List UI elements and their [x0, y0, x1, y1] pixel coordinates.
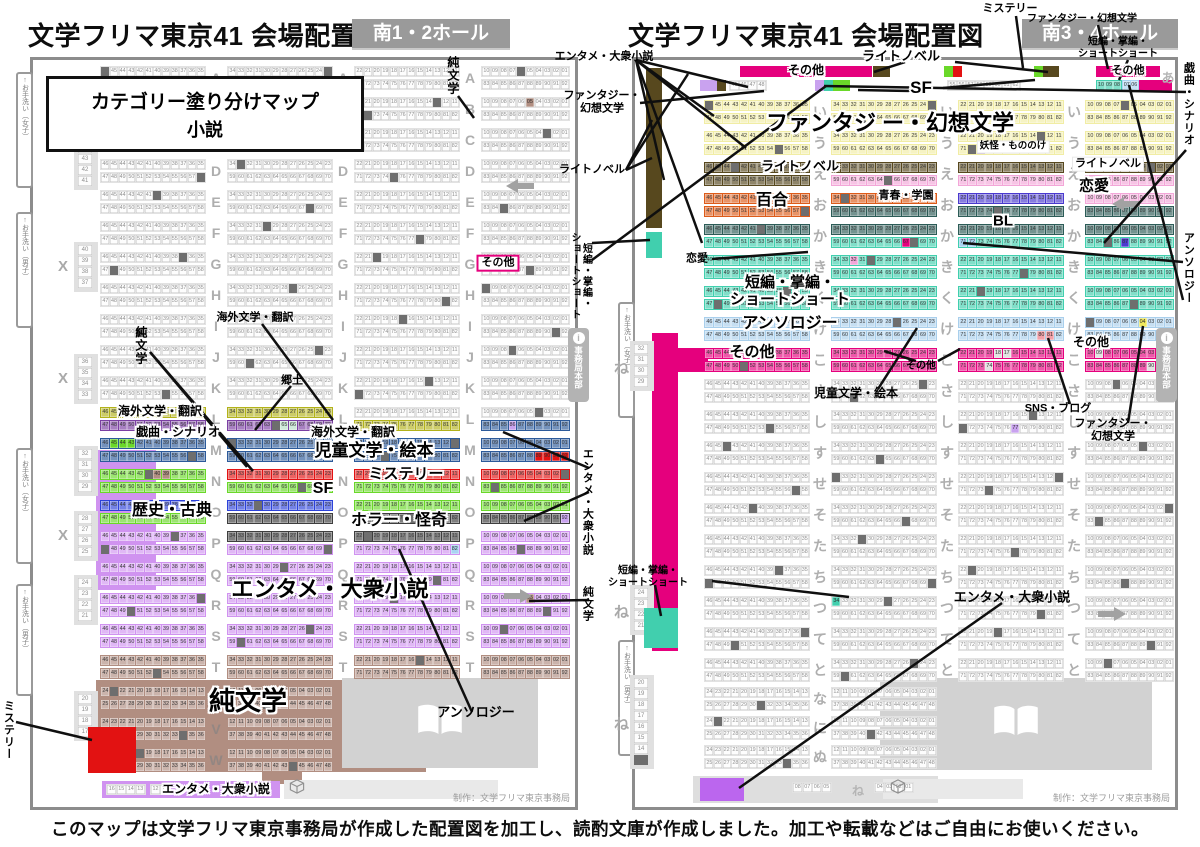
booth-cell: 57	[188, 545, 196, 555]
booth-cell: 66	[893, 269, 901, 279]
booth-cell: 44	[723, 318, 731, 328]
booth-strip: 474849505152535455565758	[704, 237, 810, 248]
booth-strip: 717273747576777879808182	[958, 423, 1064, 434]
booth-cell: 28	[280, 656, 288, 666]
booth-cell: 75	[994, 393, 1002, 403]
booth-cell: 70	[928, 455, 936, 465]
booth-cell: 23	[324, 501, 332, 511]
booth-cell: 43	[731, 194, 739, 204]
booth-cell: 64	[876, 424, 884, 434]
booth-cell: 70	[324, 204, 332, 214]
booth-cell: 58	[801, 548, 809, 558]
row-letter: ぬ	[810, 744, 830, 770]
booth-cell: 33	[841, 473, 849, 483]
booth-cell: 04	[875, 783, 884, 793]
booth-cell: 54	[766, 641, 774, 651]
booth-cell: 39	[766, 225, 774, 235]
booth-cell: 77	[1011, 300, 1019, 310]
booth-cell: 13	[433, 408, 441, 418]
booth-cell: 14	[792, 717, 800, 727]
booth-strip: 464544434241403938373635	[100, 252, 206, 263]
booth-cell: 16	[407, 501, 415, 511]
booth-cell: 01	[1165, 101, 1173, 111]
booth-cell: 90	[543, 80, 551, 90]
booth-cell: 31	[254, 625, 262, 635]
booth-cell: 15	[1020, 256, 1028, 266]
booth-cell: 06	[1121, 442, 1129, 452]
booth-cell: 02	[552, 594, 560, 604]
row-letter: Q	[460, 561, 480, 587]
booth-cell: 30	[263, 656, 271, 666]
booth-cell: 57	[792, 393, 800, 403]
booth-cell: 74	[381, 142, 389, 152]
booth-strip: 83848586878889909192	[1085, 268, 1174, 279]
booth-strip: 252627282930313233343536	[704, 700, 810, 711]
booth-cell: 27	[723, 730, 731, 740]
booth-cell: 78	[1020, 610, 1028, 620]
booth-cell: 82	[451, 545, 459, 555]
booth-cell: 28	[280, 253, 288, 263]
booth-cell: 39	[766, 101, 774, 111]
booth-cell: 80	[1037, 579, 1045, 589]
row-letter: す	[937, 440, 957, 466]
booth-cell: 22	[723, 688, 731, 698]
booth-cell: 32	[850, 318, 858, 328]
booth-cell: 53	[757, 517, 765, 527]
booth-cell: 80	[1037, 114, 1045, 124]
booth-cell: 64	[876, 145, 884, 155]
booth-cell: 85	[500, 669, 508, 679]
booth-cell: 24	[919, 442, 927, 452]
booth-cell: 10	[1086, 659, 1094, 669]
booth-cell: 40	[153, 439, 161, 449]
booth-cell: 78	[1020, 393, 1028, 403]
booth-strip: 474849505152535455565758	[100, 358, 206, 369]
booth-cell: 32	[850, 535, 858, 545]
booth-cell: 25	[101, 700, 109, 710]
booth-cell: 44	[723, 628, 731, 638]
booth-cell: 45	[298, 700, 306, 710]
booth-cell: 05	[526, 501, 534, 511]
booth-cell: 21	[731, 717, 739, 727]
booth-cell: 11	[451, 129, 459, 139]
booth-cell: 39	[766, 535, 774, 545]
booth-cell: 89	[1139, 269, 1147, 279]
booth-cell: 77	[407, 142, 415, 152]
booth-cell: 34	[228, 222, 236, 232]
booth-cell: 18	[994, 473, 1002, 483]
booth-cell: 82	[451, 359, 459, 369]
booth-cell: 91	[1156, 455, 1164, 465]
booth-cell: 53	[153, 173, 161, 183]
booth-cell: 58	[197, 235, 205, 245]
booth-cell: 58	[197, 359, 205, 369]
booth-strip: 474849505152535455565758	[100, 544, 206, 555]
booth-cell: 10	[1097, 81, 1104, 91]
booth-cell: 04	[535, 284, 543, 294]
booth-cell: 01	[561, 594, 569, 604]
booth-cell: 92	[561, 421, 569, 431]
booth-cell: 57	[188, 266, 196, 276]
booth-cell: 03	[1147, 256, 1155, 266]
booth-cell: 46	[705, 318, 713, 328]
booth-cell: 28	[884, 504, 892, 514]
row-letter: て	[1064, 626, 1084, 652]
booth-cell: 35	[801, 101, 809, 111]
booth-cell: 22	[355, 67, 363, 77]
booth-cell: 35	[801, 566, 809, 576]
booth-strip: 717273747576777879808182	[354, 637, 460, 648]
booth-cell: 71	[959, 269, 967, 279]
booth-cell: 49	[723, 331, 731, 341]
booth-cell: 63	[867, 455, 875, 465]
booth-cell: 37	[228, 731, 236, 741]
booth-cell: 04	[1139, 659, 1147, 669]
booth-cell: 65	[280, 452, 288, 462]
booth-strip: 474849505152535455565758	[704, 640, 810, 651]
booth-cell: 36	[78, 357, 92, 367]
booth-strip: 10090807060504030201	[1085, 224, 1174, 235]
booth-cell: 16	[1011, 473, 1019, 483]
booth-cell: 20	[373, 346, 381, 356]
booth-cell: 01	[1165, 287, 1173, 297]
booth-cell: 01	[561, 563, 569, 573]
booth-cell: 77	[407, 173, 415, 183]
booth-cell: 50	[731, 207, 739, 217]
booth-cell: 63	[263, 638, 271, 648]
booth-cell: 06	[812, 783, 821, 793]
booth-cell: 25	[306, 222, 314, 232]
booth-cell: 48	[757, 81, 765, 91]
booth-cell: 24	[315, 408, 323, 418]
booth-cell: 45	[902, 759, 910, 769]
booth-cell: 33	[237, 222, 245, 232]
booth-cell: 40	[757, 473, 765, 483]
booth-cell: 18	[390, 377, 398, 387]
booth-cell: 71	[959, 207, 967, 217]
row-letter: た	[1064, 533, 1084, 559]
row-letter: さ	[1064, 378, 1084, 404]
booth-cell: 46	[101, 160, 109, 170]
booth-cell: 61	[246, 514, 254, 524]
booth-cell: 45	[110, 67, 118, 77]
booth-cell: 17	[1003, 318, 1011, 328]
booth-strip: 83848586878889909192	[1085, 578, 1174, 589]
booth-cell: 10	[482, 532, 490, 542]
booth-cell: 80	[1037, 207, 1045, 217]
booth-cell: 15	[634, 733, 648, 743]
booth-cell: 74	[381, 638, 389, 648]
booth-cell: 64	[272, 452, 280, 462]
booth-cell: 74	[381, 173, 389, 183]
booth-cell: 64	[272, 514, 280, 524]
booth-cell: 11	[841, 688, 849, 698]
booth-cell: 46	[705, 659, 713, 669]
booth-cell: 49	[723, 145, 731, 155]
booth-cell: 03	[306, 687, 314, 697]
booth-cell: 29	[634, 377, 648, 387]
booth-cell: 72	[968, 672, 976, 682]
booth-cell: 60	[841, 610, 849, 620]
booth-cell: 87	[1121, 486, 1129, 496]
booth-cell: 40	[757, 566, 765, 576]
booth-cell: 35	[801, 597, 809, 607]
booth-cell: 56	[179, 452, 187, 462]
booth-cell: 25	[910, 597, 918, 607]
booth-strip: 10090807060504030201	[1085, 627, 1174, 638]
booth-cell: 51	[136, 638, 144, 648]
booth-cell: 47	[705, 548, 713, 558]
booth-cell: 85	[1104, 672, 1112, 682]
booth-cell: 86	[1113, 269, 1121, 279]
booth-cell: 57	[792, 579, 800, 589]
booth-cell: 51	[136, 297, 144, 307]
booth-cell: 05	[526, 563, 534, 573]
booth-strip: 373839404142434445464748	[227, 730, 333, 741]
booth-cell: 60	[841, 176, 849, 186]
booth-cell: 81	[1046, 176, 1054, 186]
booth-cell: 44	[119, 439, 127, 449]
booth-cell: 41	[749, 597, 757, 607]
booth-cell: 62	[858, 269, 866, 279]
booth-cell: 09	[858, 688, 866, 698]
booth-cell: 67	[298, 359, 306, 369]
booth-cell: 11	[451, 346, 459, 356]
booth-cell: 60	[237, 204, 245, 214]
booth-cell: 73	[373, 173, 381, 183]
booth-cell: 89	[1139, 393, 1147, 403]
booth-cell: 83	[482, 173, 490, 183]
booth-cell: 39	[766, 504, 774, 514]
booth-cell: 65	[884, 424, 892, 434]
booth-cell: 76	[399, 545, 407, 555]
booth-cell: 01	[1165, 318, 1173, 328]
booth-cell: 80	[433, 142, 441, 152]
booth-cell: 31	[153, 700, 161, 710]
booth-cell: 35	[801, 628, 809, 638]
booth-cell: 38	[775, 659, 783, 669]
booth-cell: 24	[315, 315, 323, 325]
booth-cell: 56	[179, 483, 187, 493]
booth-cell: 63	[867, 517, 875, 527]
booth-cell: 25	[306, 253, 314, 263]
booth-cell: 25	[306, 377, 314, 387]
booth-cell: 30	[867, 566, 875, 576]
booth-cell: 03	[543, 67, 551, 77]
booth-cell: 50	[731, 393, 739, 403]
booth-cell: 55	[171, 328, 179, 338]
booth-cell: 81	[1046, 300, 1054, 310]
booth-cell: 19	[985, 194, 993, 204]
booth-cell: 83	[1086, 269, 1094, 279]
booth-cell: 08	[263, 749, 271, 759]
booth-cell: 44	[723, 225, 731, 235]
booth-cell: 05	[526, 160, 534, 170]
booth-cell: 19	[381, 315, 389, 325]
category-label: その他	[729, 343, 774, 360]
booth-strip: 343332313029282726252423	[227, 407, 333, 418]
booth-cell: 23	[928, 101, 936, 111]
booth-cell: 64	[272, 359, 280, 369]
booth-cell: 34	[228, 284, 236, 294]
booth-cell: 19	[78, 705, 92, 715]
booth-cell: 08	[500, 625, 508, 635]
booth-strip: 596061626364656667686970	[227, 327, 333, 338]
booth-cell: 34	[783, 701, 791, 711]
row-letter: M	[206, 437, 226, 463]
booth-cell: 33	[841, 349, 849, 359]
booth-cell: 26	[902, 163, 910, 173]
booth-strip: 222120191817161514131211	[354, 252, 460, 263]
booth-cell: 61	[850, 176, 858, 186]
booth-strip: 464544434241403938373635	[100, 345, 206, 356]
booth-strip: 596061626364656667686970	[227, 203, 333, 214]
booth-cell: 88	[526, 142, 534, 152]
booth-cell: 82	[1055, 610, 1063, 620]
booth-strip: 596061626364656667686970	[831, 516, 937, 527]
booth-cell: 21	[968, 101, 976, 111]
booth-cell: 39	[766, 566, 774, 576]
booth-cell: 10	[850, 717, 858, 727]
booth-cell: 34	[832, 101, 840, 111]
booth-cell: 45	[110, 625, 118, 635]
booth-cell: 29	[272, 563, 280, 573]
booth-cell: 41	[145, 315, 153, 325]
booth-cell: 18	[390, 253, 398, 263]
booth-cell: 11	[1055, 256, 1063, 266]
booth-cell: 80	[433, 266, 441, 276]
booth-cell: 58	[801, 238, 809, 248]
booth-cell: 51	[740, 486, 748, 496]
booth-cell: 11	[451, 563, 459, 573]
booth-cell: 80	[1037, 517, 1045, 527]
toilet-tab-label: ↑お手洗い（女子）	[20, 453, 30, 562]
booth-cell: 81	[442, 142, 450, 152]
booth-cell: 54	[766, 517, 774, 527]
booth-cell: 90	[1147, 114, 1155, 124]
booth-cell: 50	[731, 641, 739, 651]
booth-cell: 87	[517, 80, 525, 90]
booth-cell: 49	[119, 514, 127, 524]
booth-cell: 55	[775, 641, 783, 651]
callout-label: ファンタジー・ 幻想文学	[1075, 417, 1152, 442]
booth-cell: 37	[179, 67, 187, 77]
booth-cell: 15	[416, 284, 424, 294]
booth-cell: 79	[1029, 393, 1037, 403]
booth-strip: 464544434241403938373635	[704, 596, 810, 607]
booth-cell: 71	[959, 672, 967, 682]
booth-cell: 30	[263, 439, 271, 449]
row-letter: N	[460, 468, 480, 494]
booth-strip: 717273747576777879808182	[958, 485, 1064, 496]
booth-cell: 41	[145, 625, 153, 635]
booth-cell: 78	[416, 638, 424, 648]
booth-cell: 83	[482, 669, 490, 679]
booth-cell: 53	[757, 238, 765, 248]
booth-cell: 07	[509, 532, 517, 542]
booth-cell: 89	[1139, 238, 1147, 248]
booth-cell: 66	[289, 204, 297, 214]
booth-cell: 61	[850, 269, 858, 279]
booth-cell: 32	[246, 253, 254, 263]
booth-cell: 54	[766, 610, 774, 620]
booth-cell: 41	[263, 762, 271, 772]
booth-cell: 79	[425, 421, 433, 431]
booth-cell: 50	[127, 390, 135, 400]
booth-cell: 47	[919, 759, 927, 769]
arrow-left-icon	[506, 178, 536, 194]
booth-strip: 343332313029282726252423	[831, 627, 937, 638]
booth-cell: 46	[705, 411, 713, 421]
booth-cell: 12	[1046, 101, 1054, 111]
booth-cell: 44	[289, 731, 297, 741]
booth-cell: 15	[179, 687, 187, 697]
booth-cell: 08	[263, 718, 271, 728]
category-label: その他	[1073, 336, 1109, 350]
booth-cell: 63	[867, 610, 875, 620]
booth-cell: 73	[373, 328, 381, 338]
booth-cell: 86	[509, 421, 517, 431]
booth-cell: 91	[1156, 238, 1164, 248]
booth-cell: 42	[876, 701, 884, 711]
booth-cell: 73	[373, 638, 381, 648]
hall2-credit: 制作：文学フリマ東京事務局	[1053, 791, 1170, 804]
booth-cell: 27	[893, 659, 901, 669]
booth-cell: 06	[517, 377, 525, 387]
booth-cell: 34	[228, 191, 236, 201]
booth-cell: 33	[171, 700, 179, 710]
booth-cell: 28	[280, 222, 288, 232]
booth-cell: 71	[959, 145, 967, 155]
booth-cell: 14	[634, 744, 648, 754]
booth-cell: 76	[1003, 176, 1011, 186]
booth-cell: 89	[535, 421, 543, 431]
booth-cell: 53	[153, 483, 161, 493]
booth-cell: 22	[959, 318, 967, 328]
booth-cell: 68	[306, 328, 314, 338]
booth-cell: 57	[792, 176, 800, 186]
booth-cell: 43	[78, 154, 92, 164]
booth-cell: 75	[994, 269, 1002, 279]
booth-cell: 28	[884, 411, 892, 421]
booth-cell: 10	[482, 377, 490, 387]
booth-strip: 83848586878889909192	[481, 79, 570, 90]
booth-cell: 19	[381, 346, 389, 356]
booth-cell: 27	[893, 504, 901, 514]
booth-cell: 38	[171, 191, 179, 201]
booth-cell: 31	[858, 504, 866, 514]
booth-cell: 78	[416, 266, 424, 276]
booth-cell: 34	[228, 439, 236, 449]
booth-cell: 02	[552, 532, 560, 542]
booth-cell: 03	[543, 563, 551, 573]
booth-cell: 67	[298, 204, 306, 214]
booth-cell: 02	[552, 656, 560, 666]
booth-cell: 42	[272, 762, 280, 772]
booth-cell: 13	[433, 222, 441, 232]
booth-cell: 01	[1165, 194, 1173, 204]
booth-cell: 20	[977, 380, 985, 390]
venue-map-page: 文学フリマ東京41 会場配置図 南1・2ホール 文学フリマ東京41 会場配置図 …	[0, 0, 1200, 847]
booth-cell: 21	[968, 194, 976, 204]
booth-cell: 41	[749, 411, 757, 421]
booth-cell: 63	[263, 545, 271, 555]
booth-cell: 61	[850, 238, 858, 248]
booth-cell: 25	[306, 563, 314, 573]
booth-cell: 06	[1121, 597, 1129, 607]
booth-cell: 69	[315, 235, 323, 245]
booth-cell: 70	[324, 669, 332, 679]
